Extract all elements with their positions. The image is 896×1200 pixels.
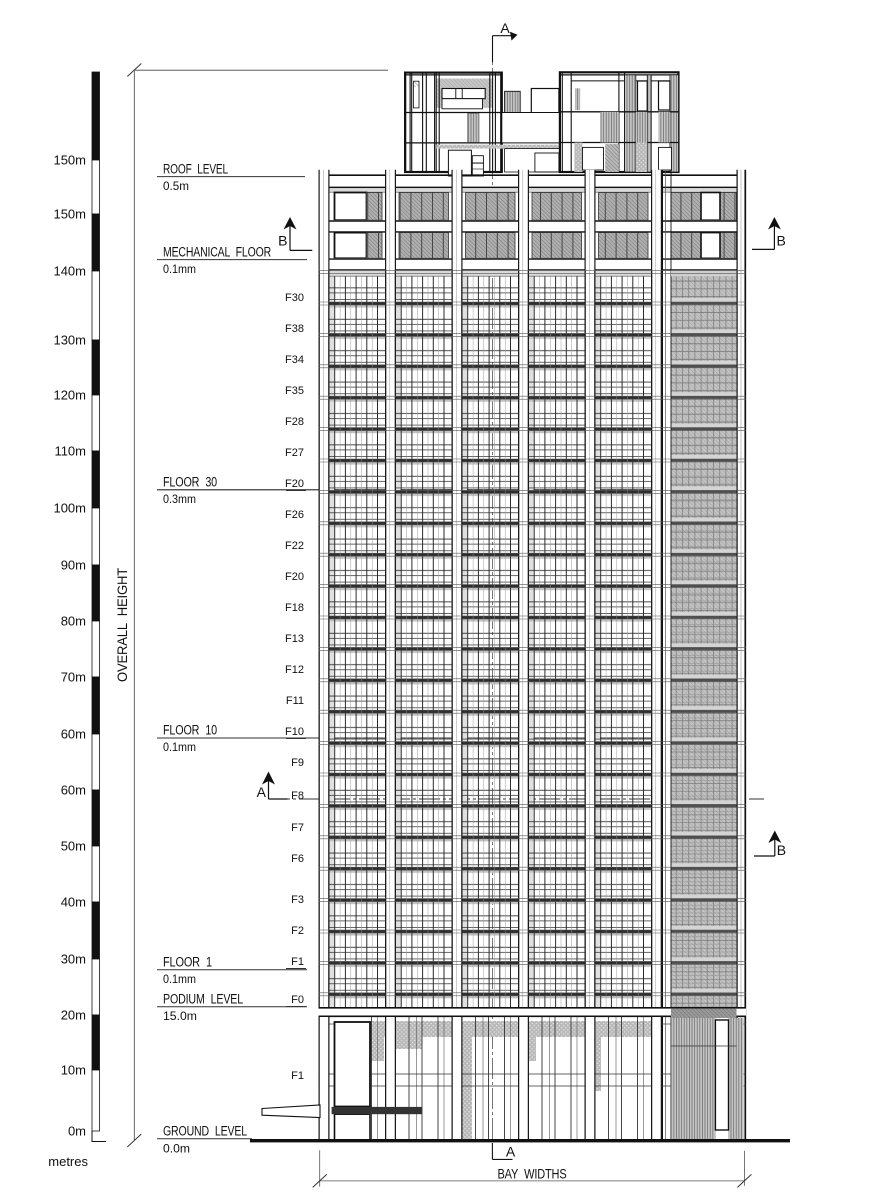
svg-text:0.1mm: 0.1mm	[163, 740, 196, 754]
svg-text:B: B	[278, 233, 287, 249]
svg-text:F13: F13	[285, 633, 304, 645]
svg-text:A: A	[506, 1144, 516, 1160]
svg-text:F11: F11	[286, 695, 304, 707]
svg-text:F9: F9	[291, 757, 304, 769]
svg-text:150m: 150m	[53, 153, 86, 168]
svg-text:0.1mm: 0.1mm	[163, 972, 196, 986]
svg-text:F28: F28	[285, 416, 304, 428]
svg-text:F1: F1	[291, 1070, 304, 1082]
svg-text:0.3mm: 0.3mm	[163, 492, 196, 506]
svg-text:F26: F26	[285, 509, 304, 521]
svg-text:F34: F34	[285, 354, 304, 366]
svg-text:80m: 80m	[61, 614, 86, 629]
svg-text:100m: 100m	[53, 501, 86, 516]
svg-text:70m: 70m	[61, 670, 86, 685]
svg-text:150m: 150m	[53, 207, 86, 222]
svg-text:F3: F3	[291, 894, 304, 906]
svg-text:30m: 30m	[61, 952, 86, 967]
svg-text:BAY WIDTHS: BAY WIDTHS	[498, 1167, 567, 1182]
svg-text:0.1mm: 0.1mm	[163, 262, 196, 276]
svg-text:140m: 140m	[53, 264, 86, 279]
svg-text:0.0m: 0.0m	[163, 1142, 190, 1156]
svg-text:A: A	[500, 20, 510, 36]
svg-text:PODIUM LEVEL: PODIUM LEVEL	[163, 992, 244, 1007]
svg-text:130m: 130m	[53, 333, 86, 348]
svg-text:F12: F12	[285, 664, 304, 676]
svg-text:F0: F0	[291, 994, 304, 1006]
svg-text:20m: 20m	[61, 1008, 86, 1023]
svg-text:F27: F27	[285, 447, 304, 459]
svg-text:0.5m: 0.5m	[163, 179, 189, 193]
svg-text:B: B	[777, 842, 786, 858]
svg-text:F20: F20	[285, 571, 304, 583]
svg-text:F1: F1	[291, 956, 304, 968]
svg-text:F6: F6	[291, 853, 304, 865]
svg-text:F38: F38	[285, 323, 304, 335]
svg-text:F2: F2	[291, 925, 304, 937]
svg-text:0m: 0m	[68, 1124, 86, 1139]
svg-text:GROUND LEVEL: GROUND LEVEL	[163, 1124, 248, 1139]
svg-text:50m: 50m	[61, 839, 86, 854]
svg-text:60m: 60m	[61, 727, 86, 742]
svg-text:90m: 90m	[61, 558, 86, 573]
svg-text:metres: metres	[48, 1154, 88, 1169]
svg-text:F8: F8	[291, 790, 304, 802]
svg-text:F30: F30	[285, 292, 304, 304]
svg-text:110m: 110m	[54, 444, 86, 459]
svg-text:60m: 60m	[61, 783, 86, 798]
svg-text:F7: F7	[291, 822, 304, 834]
svg-text:OVERALL HEIGHT: OVERALL HEIGHT	[115, 568, 130, 682]
svg-text:F22: F22	[285, 540, 304, 552]
svg-text:MECHANICAL FLOOR: MECHANICAL FLOOR	[163, 245, 271, 260]
svg-text:B: B	[777, 233, 786, 249]
svg-text:FLOOR 10: FLOOR 10	[163, 723, 217, 738]
svg-text:FLOOR 1: FLOOR 1	[163, 955, 212, 970]
svg-text:A: A	[257, 784, 267, 800]
svg-text:F35: F35	[285, 385, 304, 397]
svg-text:F10: F10	[285, 726, 304, 738]
svg-text:40m: 40m	[61, 895, 86, 910]
svg-text:FLOOR 30: FLOOR 30	[163, 475, 217, 490]
svg-text:F18: F18	[285, 602, 304, 614]
svg-text:120m: 120m	[53, 388, 86, 403]
svg-text:ROOF LEVEL: ROOF LEVEL	[163, 162, 229, 177]
svg-text:F20: F20	[285, 478, 304, 490]
svg-text:15.0m: 15.0m	[163, 1009, 197, 1023]
svg-text:10m: 10m	[61, 1063, 86, 1078]
